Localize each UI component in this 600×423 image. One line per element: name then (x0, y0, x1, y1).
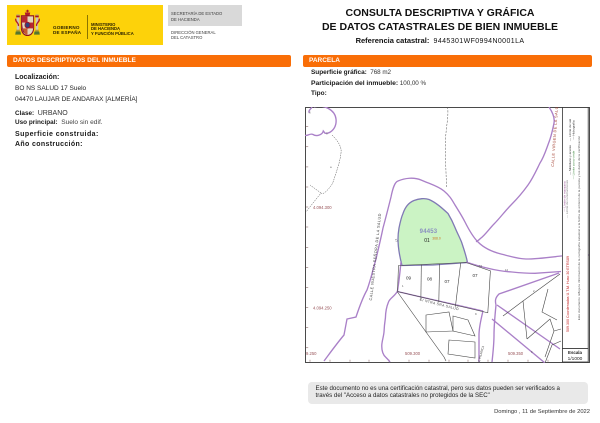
svg-text:16: 16 (479, 264, 483, 268)
svg-text:08: 08 (427, 276, 433, 281)
svg-text:509.300: 509.300 (405, 351, 421, 356)
svg-text:07: 07 (472, 273, 478, 278)
svg-text:94453: 94453 (419, 229, 437, 235)
svg-text:1/1000: 1/1000 (567, 356, 582, 362)
svg-text:09: 09 (406, 275, 412, 280)
svg-text:— Límite de construcciones: — Límite de construcciones (565, 179, 569, 218)
svg-text:368.0: 368.0 (432, 236, 441, 240)
svg-text:07: 07 (444, 279, 450, 284)
svg-text:Este documento refleja la info: Este documento refleja la información de… (576, 135, 580, 320)
svg-text:509.300 Coordenadas U.T.M. Hus: 509.300 Coordenadas U.T.M. Huso 30 ETRS8… (566, 256, 570, 332)
svg-text:01: 01 (424, 238, 430, 244)
svg-text:— Hidrografía: — Hidrografía (571, 120, 575, 140)
svg-text:Escala: Escala (568, 350, 582, 355)
svg-text:— Límite zona verde: — Límite zona verde (571, 150, 575, 179)
svg-text:4.094.250: 4.094.250 (313, 305, 332, 310)
svg-text:4.094.300: 4.094.300 (313, 205, 332, 210)
svg-text:12: 12 (505, 268, 509, 272)
svg-text:9.250: 9.250 (306, 351, 317, 356)
svg-text:509.350: 509.350 (508, 351, 524, 356)
